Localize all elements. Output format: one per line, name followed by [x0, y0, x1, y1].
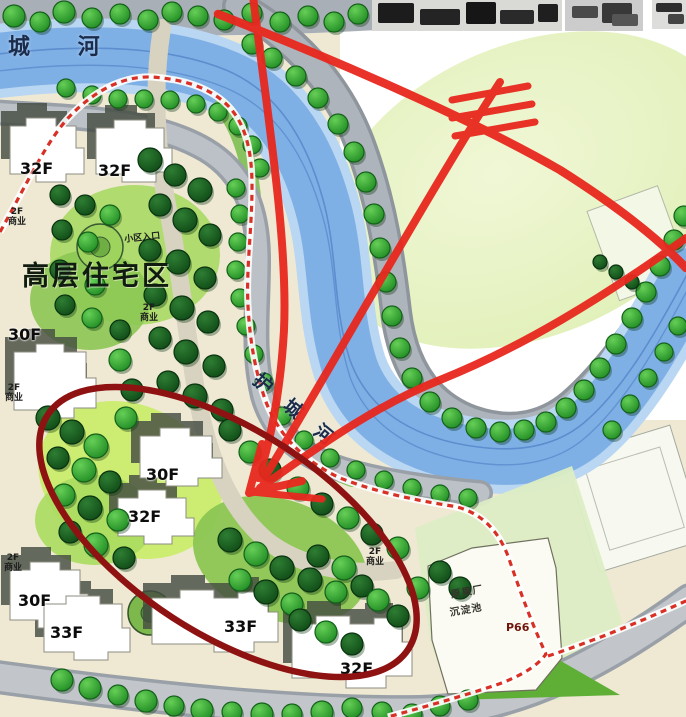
- floor-label: 32F: [20, 160, 53, 178]
- factory-label: 沉淀池: [449, 602, 483, 619]
- river-label-moat: 护 城 河: [249, 370, 343, 454]
- floor-label: 33F: [50, 624, 83, 642]
- commercial-label: 2F 商业: [140, 304, 158, 324]
- floor-label: 30F: [18, 592, 51, 610]
- floor-label: 30F: [8, 326, 41, 344]
- river-label-top: 城 河: [8, 36, 120, 60]
- district-label: 高层住宅区: [22, 262, 172, 292]
- floor-label: 33F: [224, 618, 257, 636]
- commercial-label: 2F 商业: [366, 548, 384, 568]
- floor-label: 32F: [128, 508, 161, 526]
- map-labels: 城 河护 城 河高层住宅区小区入口2F 商业2F 商业2F 商业2F 商业2F …: [0, 0, 686, 717]
- parking-label: P66: [506, 622, 529, 634]
- floor-label: 32F: [340, 660, 373, 678]
- commercial-label: 2F 商业: [8, 208, 26, 228]
- entrance-label: 小区入口: [124, 232, 161, 246]
- floor-label: 32F: [98, 162, 131, 180]
- commercial-label: 2F 商业: [5, 384, 23, 404]
- commercial-label: 2F 商业: [4, 554, 22, 574]
- factory-label: 原果厂: [450, 584, 484, 601]
- site-plan-map: 城 河护 城 河高层住宅区小区入口2F 商业2F 商业2F 商业2F 商业2F …: [0, 0, 686, 717]
- floor-label: 30F: [146, 466, 179, 484]
